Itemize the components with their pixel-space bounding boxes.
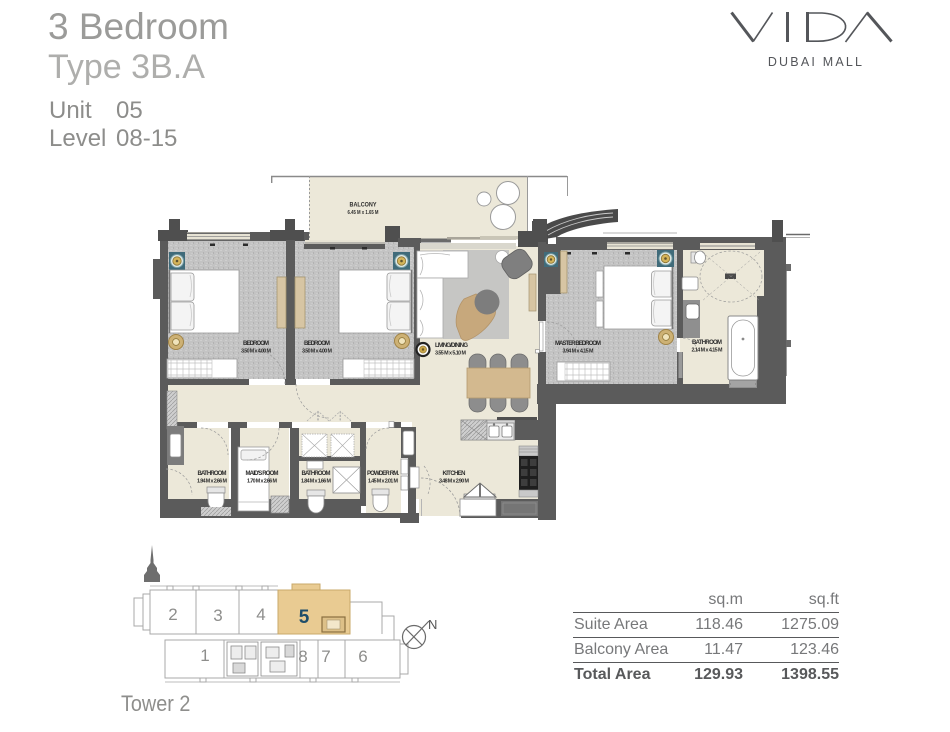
svg-text:LIVING/DINING: LIVING/DINING <box>435 343 468 349</box>
svg-text:1.45 M x 2.01 M: 1.45 M x 2.01 M <box>368 479 399 485</box>
svg-text:N: N <box>428 617 437 632</box>
svg-text:1: 1 <box>200 646 209 665</box>
svg-text:BALCONY: BALCONY <box>350 203 377 209</box>
svg-text:KITCHEN: KITCHEN <box>443 471 466 477</box>
svg-text:1.94 M x 2.66 M: 1.94 M x 2.66 M <box>197 479 228 485</box>
svg-text:6: 6 <box>358 647 367 666</box>
svg-text:BATHROOM: BATHROOM <box>198 471 227 477</box>
svg-text:1.84 M x 1.66 M: 1.84 M x 1.66 M <box>301 479 332 485</box>
svg-text:8: 8 <box>298 647 307 666</box>
svg-text:7: 7 <box>321 647 330 666</box>
svg-text:BEDROOM: BEDROOM <box>304 341 330 347</box>
svg-text:1.70 M x 2.66 M: 1.70 M x 2.66 M <box>247 479 278 485</box>
svg-text:BATHROOM: BATHROOM <box>692 340 722 346</box>
svg-text:2.14 M x 4.15 M: 2.14 M x 4.15 M <box>692 348 724 354</box>
svg-text:5: 5 <box>299 607 310 628</box>
svg-text:3.48 M x 2.90 M: 3.48 M x 2.90 M <box>439 479 470 485</box>
svg-text:4: 4 <box>256 605 265 624</box>
svg-text:BEDROOM: BEDROOM <box>243 341 269 347</box>
svg-text:POWDER RM.: POWDER RM. <box>367 471 399 477</box>
svg-text:3: 3 <box>213 606 222 625</box>
svg-text:3.94 M x 4.15 M: 3.94 M x 4.15 M <box>563 349 595 355</box>
svg-text:MASTER BEDROOM: MASTER BEDROOM <box>555 341 601 347</box>
svg-text:BATHROOM: BATHROOM <box>302 471 331 477</box>
svg-text:3.50 M x 4.00 M: 3.50 M x 4.00 M <box>302 349 333 355</box>
svg-text:MAID'S ROOM: MAID'S ROOM <box>246 471 279 477</box>
svg-text:3.55 M x 5.10 M: 3.55 M x 5.10 M <box>435 351 467 357</box>
svg-text:2: 2 <box>168 605 177 624</box>
svg-text:3.50 M x 4.00 M: 3.50 M x 4.00 M <box>241 349 272 355</box>
svg-text:6.45 M x 1.65 M: 6.45 M x 1.65 M <box>348 210 379 216</box>
